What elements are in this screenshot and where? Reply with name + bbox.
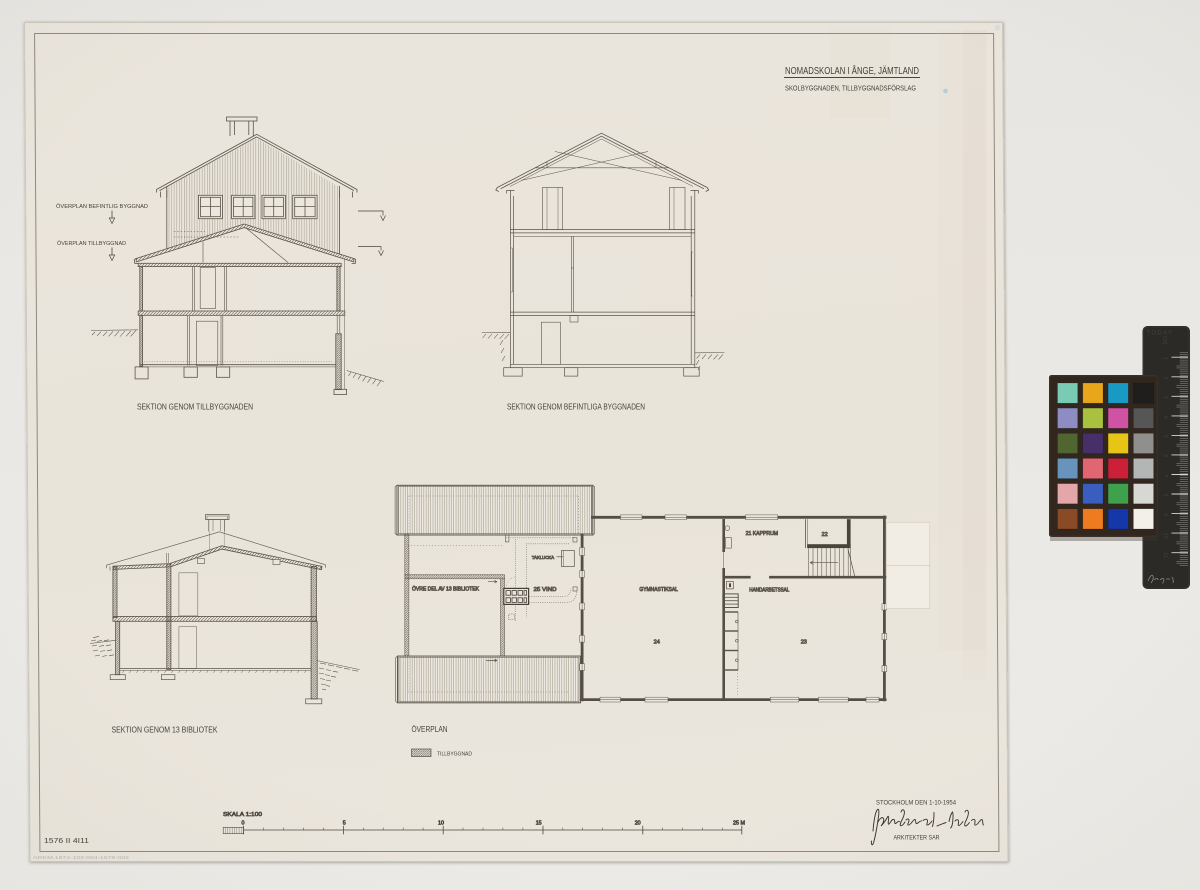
svg-text:GYMNASTIKSAL: GYMNASTIKSAL [639, 587, 678, 593]
svg-text:STOCKHOLM DEN 1-10-1954: STOCKHOLM DEN 1-10-1954 [876, 800, 956, 807]
svg-text:SEKTION GENOM BEFINTLIGA BYGGN: SEKTION GENOM BEFINTLIGA BYGGNADEN [507, 403, 645, 412]
svg-text:ARKITEKTER SAR: ARKITEKTER SAR [894, 836, 941, 842]
svg-text:3: 3 [1162, 396, 1168, 399]
svg-text:TILLBYGGNAD: TILLBYGGNAD [437, 752, 472, 758]
svg-text:SKOLBYGGNADEN, TILLBYGGNADSFÖR: SKOLBYGGNADEN, TILLBYGGNADSFÖRSLAG [785, 85, 916, 93]
svg-text:SKALA 1:100: SKALA 1:100 [223, 812, 262, 818]
svg-text:10: 10 [438, 821, 444, 827]
svg-text:20: 20 [635, 821, 641, 827]
svg-text:ÖVERPLAN: ÖVERPLAN [412, 724, 448, 734]
svg-text:HANDARBETSSAL: HANDARBETSSAL [749, 587, 789, 593]
svg-text:8: 8 [1162, 494, 1168, 497]
svg-text:11: 11 [1162, 552, 1168, 558]
svg-text:7: 7 [1162, 474, 1168, 477]
svg-text:15: 15 [536, 821, 542, 827]
svg-text:5: 5 [1162, 435, 1168, 438]
svg-text:2: 2 [1162, 376, 1168, 379]
svg-text:22: 22 [822, 532, 828, 538]
svg-text:9: 9 [1162, 513, 1168, 516]
svg-text:1: 1 [1162, 357, 1168, 360]
svg-text:ARKM.1974-103-094-1576-002: ARKM.1974-103-094-1576-002 [33, 855, 130, 860]
svg-text:5: 5 [343, 821, 346, 827]
svg-text:CM: CM [1161, 336, 1167, 345]
svg-text:SEKTION GENOM 13 BIBLIOTEK: SEKTION GENOM 13 BIBLIOTEK [112, 726, 218, 735]
svg-text:24: 24 [654, 640, 660, 646]
svg-text:10: 10 [1162, 533, 1168, 539]
svg-text:SEKTION GENOM TILLBYGGNADEN: SEKTION GENOM TILLBYGGNADEN [137, 403, 253, 412]
svg-text:25 VIND: 25 VIND [534, 587, 557, 593]
svg-text:23: 23 [801, 640, 807, 646]
svg-text:TAKLUCKA: TAKLUCKA [532, 555, 555, 560]
svg-text:NOMADSKOLAN I ÅNGE, JÄMTLAND: NOMADSKOLAN I ÅNGE, JÄMTLAND [785, 64, 919, 77]
svg-text:25 M: 25 M [733, 821, 745, 827]
svg-text:21 KAPPRUM: 21 KAPPRUM [746, 531, 779, 537]
svg-text:1576 II 4I11: 1576 II 4I11 [44, 836, 89, 845]
svg-text:ÖVERPLAN TILLBYGGNAD: ÖVERPLAN TILLBYGGNAD [57, 240, 126, 247]
svg-text:ÖVRE DEL AV 13 BIBLIOTEK: ÖVRE DEL AV 13 BIBLIOTEK [412, 586, 480, 593]
svg-text:6: 6 [1162, 454, 1168, 457]
svg-text:0: 0 [242, 821, 245, 827]
svg-text:TODAY: TODAY [1147, 330, 1174, 337]
svg-text:4: 4 [1162, 415, 1168, 418]
svg-text:ÖVERPLAN BEFINTLIG BYGGNAD: ÖVERPLAN BEFINTLIG BYGGNAD [56, 203, 148, 210]
